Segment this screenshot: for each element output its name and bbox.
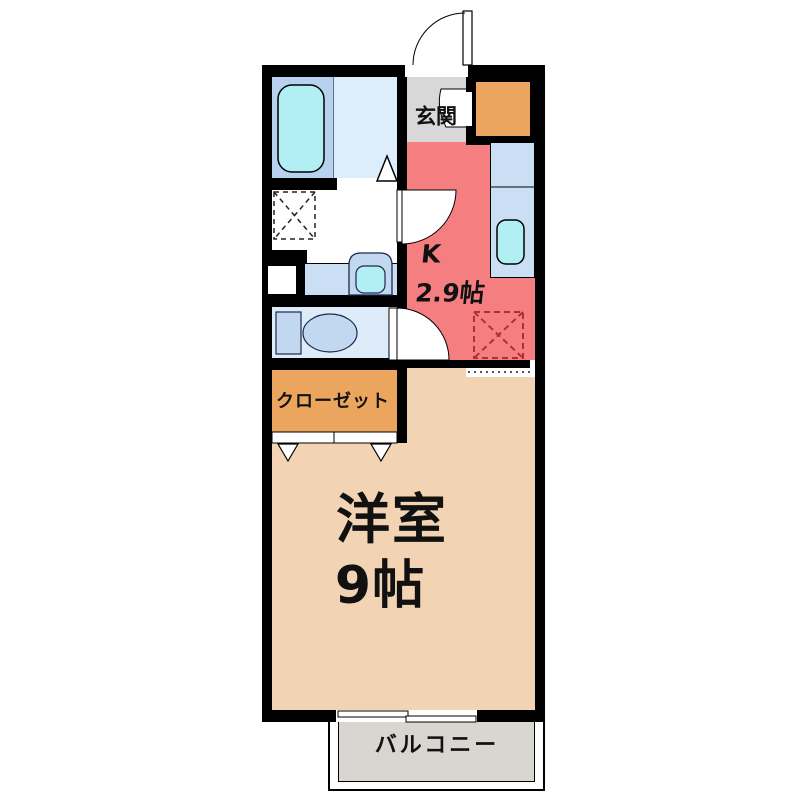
toilet-door-leaf: [389, 308, 397, 360]
toilet-door-swing: [397, 308, 449, 360]
closet-folding-doors: [272, 432, 397, 461]
toilet-tank: [276, 312, 301, 354]
refrigerator-space: [474, 312, 523, 358]
room-size-label: 9帖: [335, 560, 425, 612]
bathroom-door-marker: [377, 156, 397, 181]
kitchen-k-label: K: [420, 242, 442, 267]
fixtures-layer: [0, 0, 800, 800]
washing-machine-space: [274, 192, 315, 239]
kitchen-sink: [497, 220, 524, 264]
room-name-label: 洋室: [336, 493, 448, 547]
washbasin-bowl: [356, 266, 385, 293]
entrance-door-leaf: [463, 11, 472, 65]
sliding-window: [338, 711, 476, 722]
floor-plan: 玄関 K 2.9帖 クローゼット 洋室 9帖 バルコニー: [0, 0, 800, 800]
genkan-label: 玄関: [415, 107, 457, 128]
washroom-door-swing: [402, 190, 456, 244]
closet-label: クローゼット: [276, 393, 390, 411]
kitchen-size-label: 2.9帖: [414, 281, 486, 306]
entrance-door-swing: [413, 13, 465, 65]
balcony-label: バルコニー: [375, 735, 500, 757]
bathtub: [278, 85, 324, 172]
toilet-bowl: [303, 314, 357, 352]
